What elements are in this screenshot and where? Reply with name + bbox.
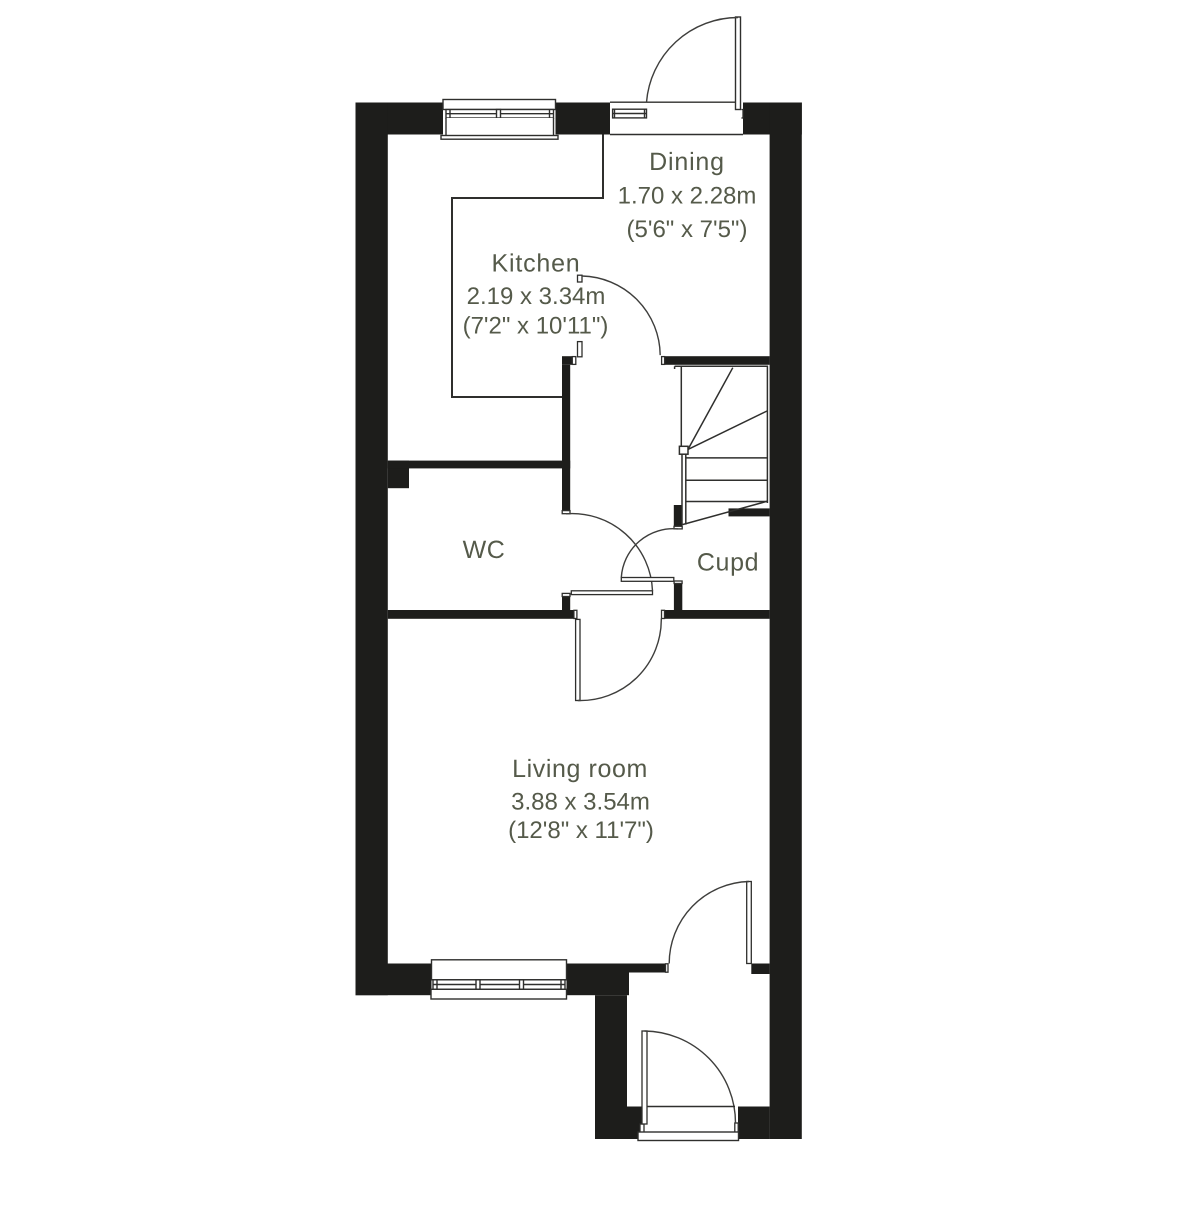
svg-text:1.70 x 2.28m: 1.70 x 2.28m [618, 183, 757, 210]
svg-text:(5'6" x 7'5"): (5'6" x 7'5") [627, 216, 748, 243]
svg-text:Dining: Dining [649, 148, 725, 176]
svg-text:WC: WC [463, 536, 506, 564]
svg-text:Kitchen: Kitchen [492, 250, 581, 278]
svg-text:3.88 x 3.54m: 3.88 x 3.54m [511, 789, 650, 816]
svg-text:Living room: Living room [512, 755, 648, 783]
svg-text:Cupd: Cupd [697, 549, 759, 577]
svg-text:2.19 x 3.34m: 2.19 x 3.34m [467, 283, 606, 310]
svg-text:(7'2" x 10'11"): (7'2" x 10'11") [463, 313, 609, 340]
svg-text:(12'8" x 11'7"): (12'8" x 11'7") [508, 817, 654, 844]
